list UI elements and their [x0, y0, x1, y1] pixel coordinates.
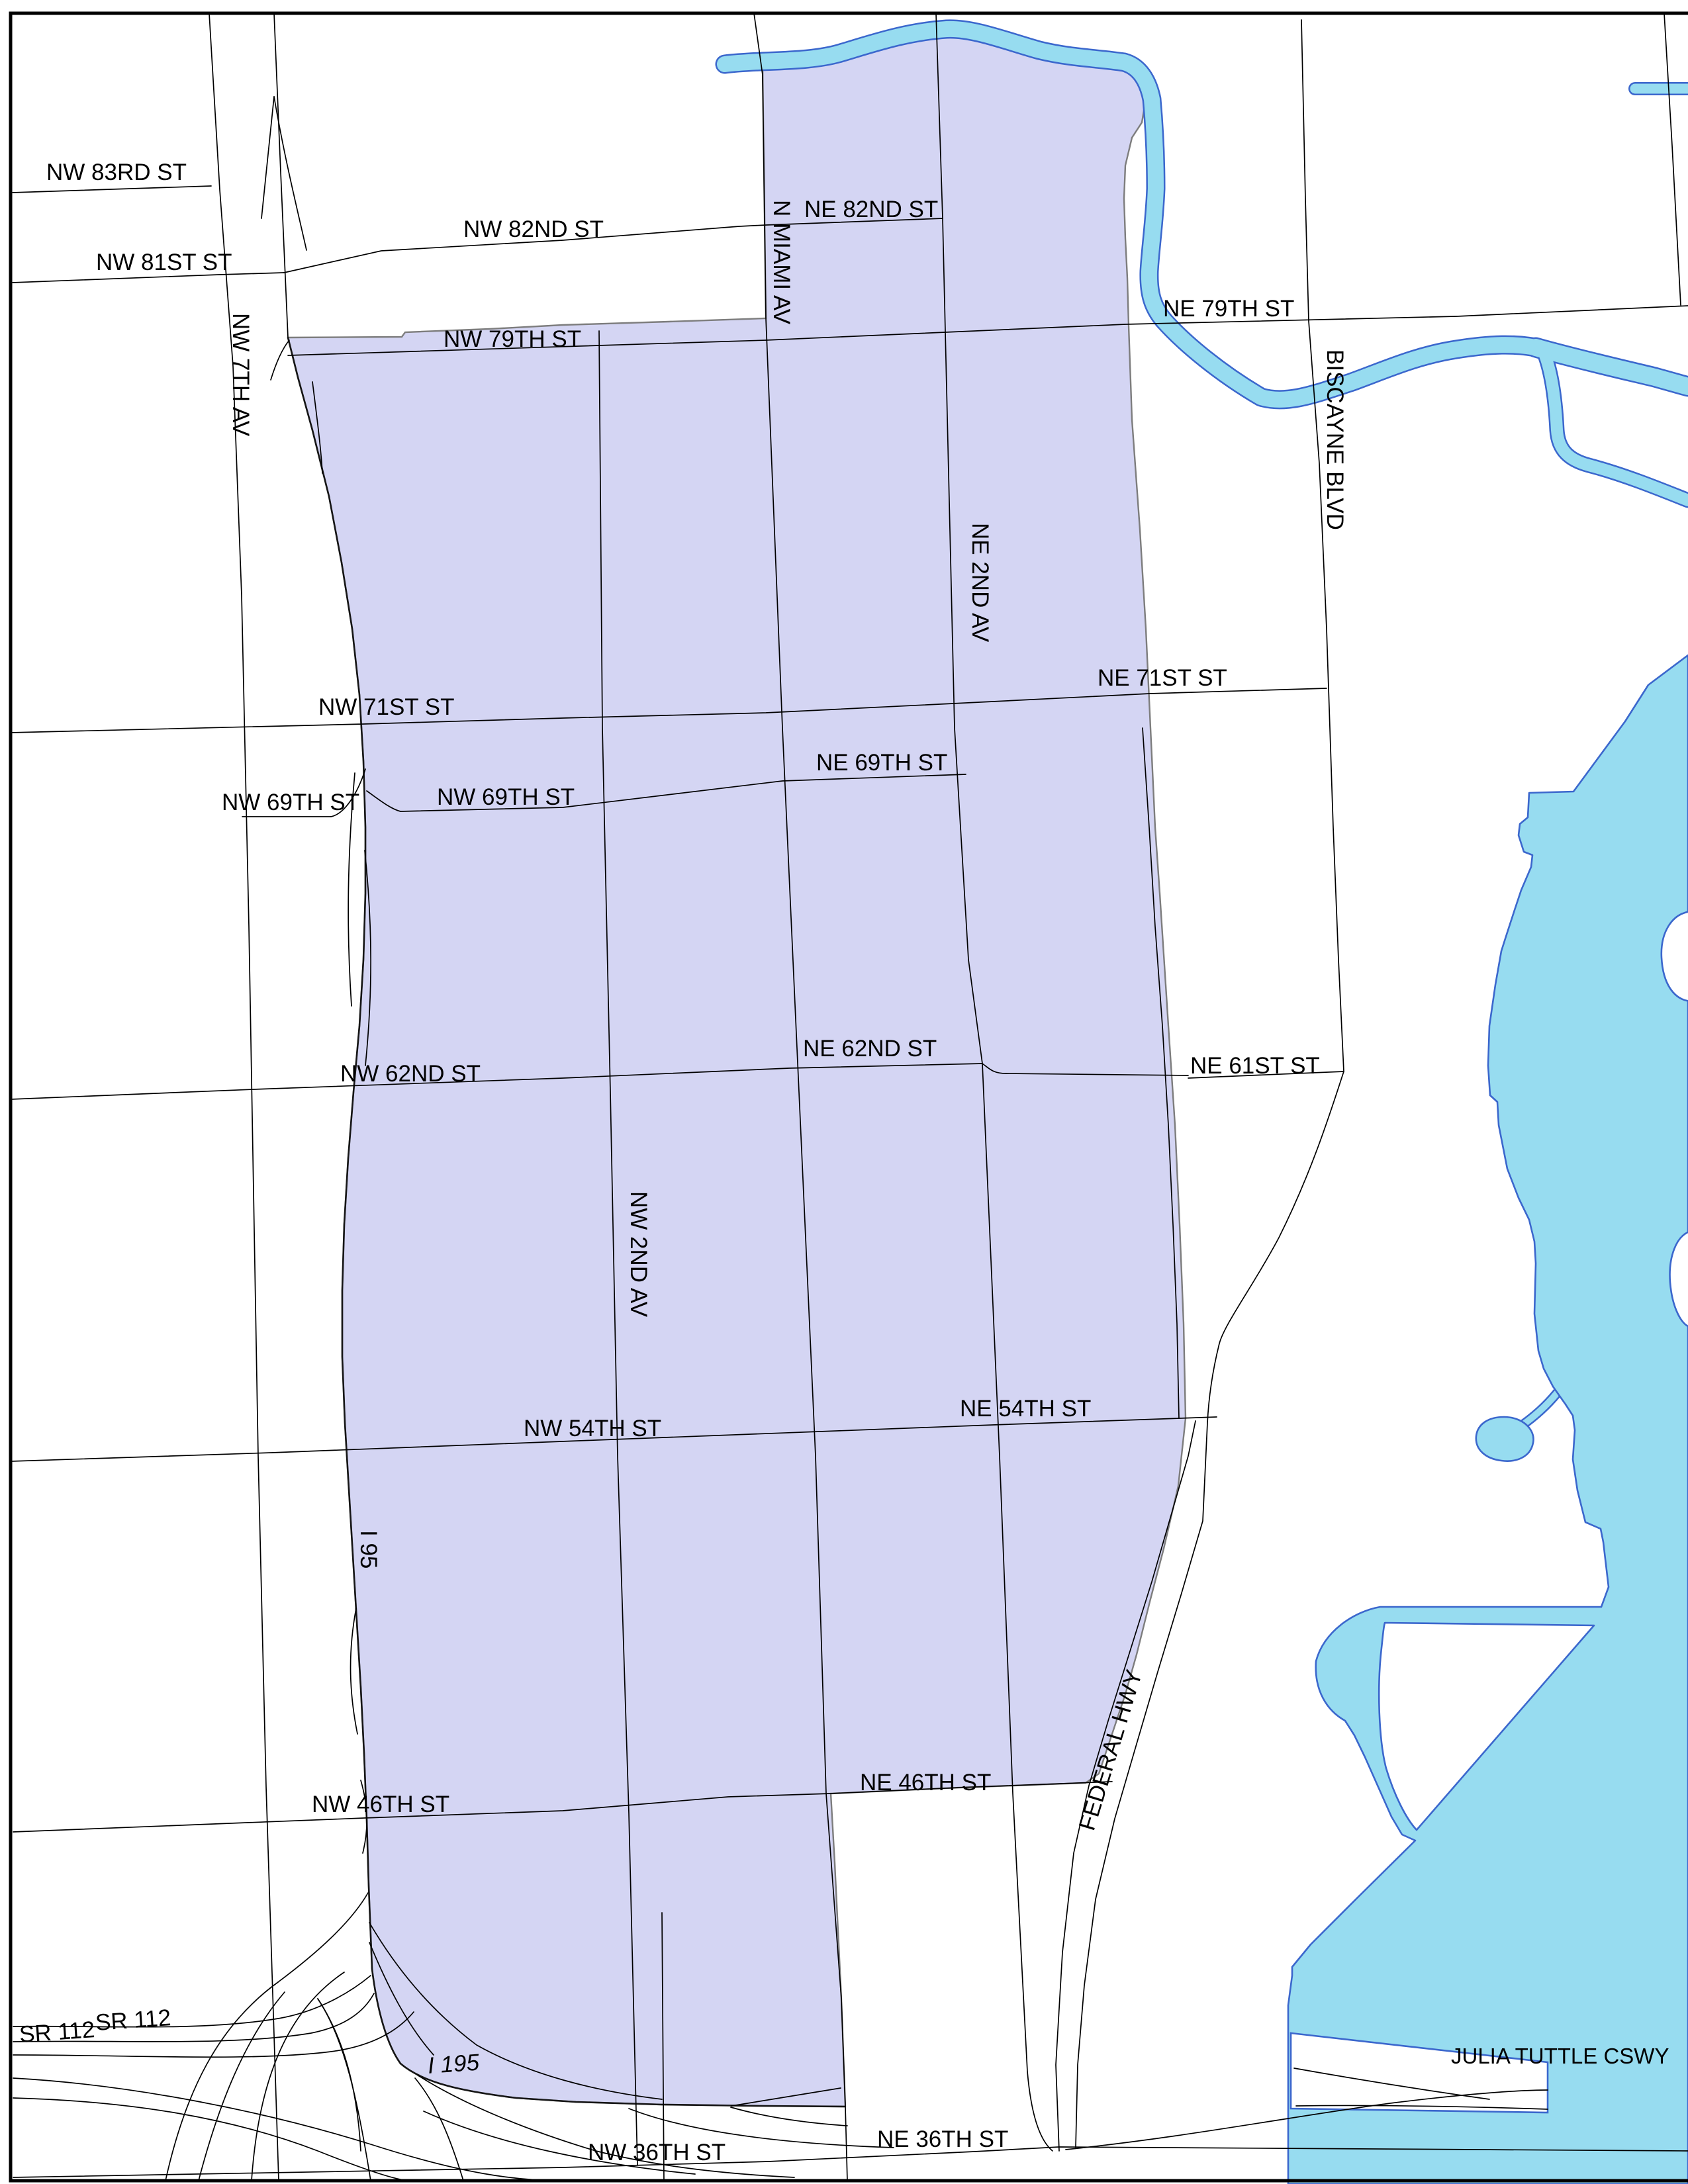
svg-text:NW 2ND AV: NW 2ND AV [626, 1191, 651, 1318]
svg-text:NE 46TH ST: NE 46TH ST [860, 1770, 991, 1796]
svg-text:I 195: I 195 [427, 2050, 481, 2079]
svg-text:I 95: I 95 [355, 1530, 381, 1569]
svg-text:NW 69TH ST: NW 69TH ST [437, 784, 575, 810]
svg-text:NW 69TH ST: NW 69TH ST [222, 790, 359, 815]
svg-text:NE 82ND ST: NE 82ND ST [804, 197, 938, 222]
svg-text:NE 54TH ST: NE 54TH ST [960, 1396, 1091, 1422]
svg-text:NW 54TH ST: NW 54TH ST [524, 1416, 661, 1441]
svg-text:BISCAYNE BLVD: BISCAYNE BLVD [1322, 349, 1348, 530]
svg-text:NE 2ND AV: NE 2ND AV [967, 523, 993, 643]
svg-text:NE 61ST ST: NE 61ST ST [1190, 1053, 1320, 1079]
svg-text:NE 71ST ST: NE 71ST ST [1098, 665, 1227, 691]
svg-text:NW 46TH ST: NW 46TH ST [312, 1792, 449, 1817]
svg-text:NW 83RD ST: NW 83RD ST [46, 159, 187, 185]
svg-text:NE 69TH ST: NE 69TH ST [816, 750, 947, 776]
svg-text:NE 36TH ST: NE 36TH ST [877, 2126, 1008, 2152]
svg-text:NE 62ND ST: NE 62ND ST [803, 1036, 937, 1062]
svg-text:SR 112: SR 112 [95, 2005, 172, 2036]
svg-text:JULIA TUTTLE CSWY: JULIA TUTTLE CSWY [1451, 2044, 1669, 2068]
svg-text:NW 71ST ST: NW 71ST ST [318, 694, 455, 720]
svg-text:N MIAMI AV: N MIAMI AV [769, 200, 794, 325]
svg-text:NW 7TH AV: NW 7TH AV [228, 313, 254, 437]
svg-text:NW 81ST ST: NW 81ST ST [96, 250, 232, 275]
svg-text:NW 36TH ST: NW 36TH ST [588, 2140, 726, 2165]
svg-text:NW 82ND ST: NW 82ND ST [463, 216, 604, 242]
svg-text:NW 79TH ST: NW 79TH ST [444, 326, 581, 352]
svg-text:NE 79TH ST: NE 79TH ST [1163, 296, 1294, 322]
svg-text:SR 112: SR 112 [19, 2017, 96, 2048]
svg-text:NW 62ND ST: NW 62ND ST [340, 1061, 481, 1087]
